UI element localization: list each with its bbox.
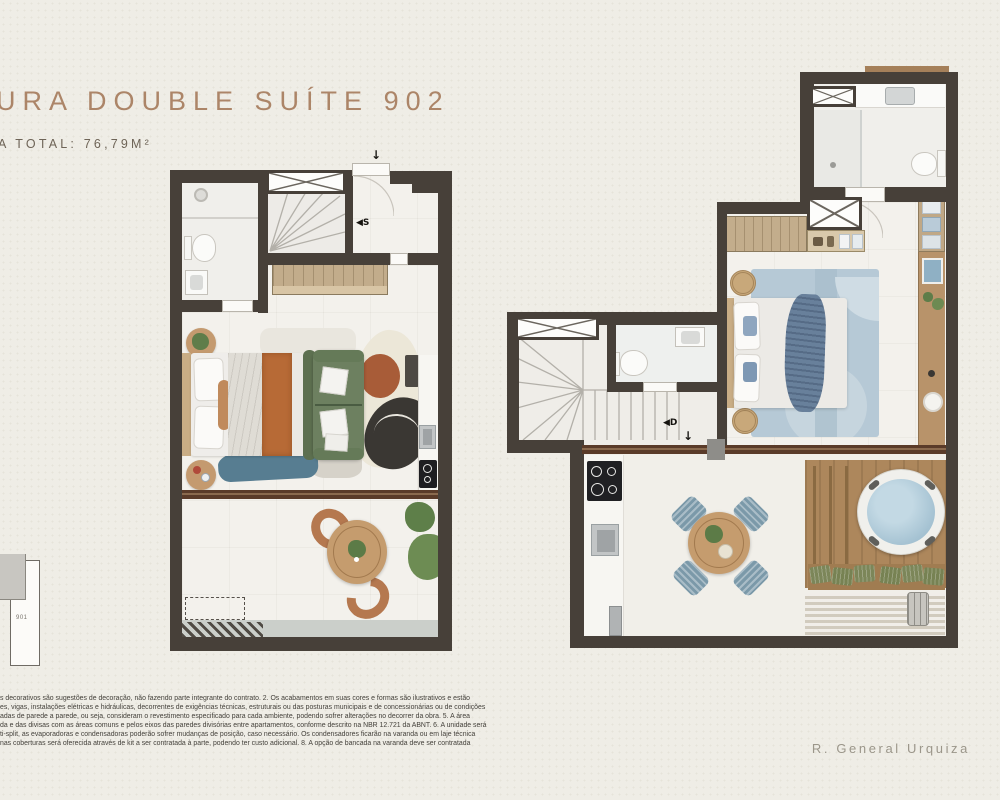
toilet-bowl [911, 152, 937, 176]
hot-tub-water [867, 479, 935, 545]
disclaimer-line: adas de parede a parede, ou seja, consid… [0, 712, 445, 721]
hot-tub [857, 469, 945, 555]
shower-head [194, 188, 208, 202]
bench-cushion [922, 567, 944, 586]
wall [570, 448, 584, 648]
door-swing-arc [354, 176, 394, 216]
disclaimer-line: nas coberturas será oferecida através de… [0, 739, 445, 748]
jute-rug [732, 408, 758, 434]
wall [717, 202, 809, 214]
staircase-first-level [268, 192, 345, 253]
wall [408, 253, 438, 265]
disclaimer-line: es, vigas, instalações elétricas e hidrá… [0, 703, 445, 712]
table-grain-ring [694, 518, 744, 568]
track-line [182, 493, 438, 495]
bathroom-sink [185, 270, 208, 295]
table-plant [705, 525, 723, 543]
burner [591, 483, 604, 496]
sofa [303, 350, 364, 460]
floor-plan-first-level: ↓ ◀S [170, 158, 462, 652]
sofa-armrest [313, 350, 364, 362]
wall [438, 171, 452, 645]
deck-plank-line [813, 466, 816, 578]
table-bowl [718, 544, 733, 559]
vanity-counter [855, 84, 945, 108]
table-dot [354, 557, 359, 562]
outdoor-shower [907, 592, 929, 626]
wall [946, 72, 958, 648]
track-line [582, 448, 946, 450]
shaft-box [515, 316, 599, 340]
bed-suite [727, 298, 847, 408]
deck-plank-line [845, 466, 848, 578]
table-lamp [923, 392, 943, 412]
shower-drain [830, 162, 836, 168]
bench-cushion [831, 567, 854, 586]
bench-cushion [853, 564, 875, 582]
wall [258, 183, 268, 313]
wardrobe-front [273, 286, 387, 294]
sofa-cushion-gap [315, 404, 362, 406]
side-table-decor [186, 460, 216, 490]
bed-duvet [228, 353, 262, 456]
accent-pillow [743, 316, 757, 336]
dining-table [688, 512, 750, 574]
sink-basin [423, 429, 432, 445]
toilet-tank [184, 236, 192, 260]
door-mullion [707, 439, 725, 460]
kitchen-cabinet [609, 606, 622, 636]
door-opening [390, 253, 408, 265]
wall [607, 382, 643, 392]
desk-decor [928, 370, 935, 377]
plant-top [192, 333, 209, 350]
entry-door [352, 163, 390, 176]
wall [677, 382, 717, 392]
sliding-door-track [182, 490, 438, 499]
total-area-label: A TOTAL: 76,79M² [0, 137, 152, 151]
kitchen-sink [591, 524, 619, 556]
wardrobe-suite [725, 216, 807, 252]
wall [253, 300, 268, 312]
decor-red [193, 466, 201, 474]
refrigerator [405, 355, 419, 387]
disclaimer-line: s decorativos são sugestões de decoração… [0, 694, 445, 703]
terrace-table [327, 520, 387, 584]
keyplan: 901 [0, 553, 50, 671]
burner [591, 466, 602, 477]
deck-plank-line [829, 466, 832, 578]
wall [570, 636, 958, 648]
page-title: URA DOUBLE SUÍTE 902 [0, 86, 450, 117]
accent-pillow [743, 362, 757, 382]
rug-charcoal-line [373, 413, 421, 455]
towel-stack [922, 217, 941, 232]
bench-cushion [879, 566, 902, 585]
shaft-box [807, 197, 862, 230]
wall [170, 170, 182, 651]
sofa-pillow [319, 366, 348, 395]
sofa-pillow [324, 433, 348, 452]
jute-rug [730, 270, 756, 296]
shower-glass-divider [182, 217, 258, 219]
desk-plant [932, 298, 944, 310]
stair-direction-label: ◀S [356, 218, 369, 228]
door-opening [222, 300, 253, 312]
burner [608, 485, 617, 494]
vanity-sink [885, 87, 915, 105]
table-plant [348, 540, 366, 558]
wall [170, 637, 452, 651]
brochure-page: URA DOUBLE SUÍTE 902 A TOTAL: 76,79M² [0, 0, 1000, 800]
wall [345, 170, 353, 256]
cooktop-4-burner [587, 461, 622, 501]
sliding-door-track [582, 445, 946, 454]
bed-throw [783, 293, 827, 412]
towel-stack [922, 201, 941, 214]
wall [266, 253, 392, 265]
desk-plant [923, 292, 933, 302]
wall [885, 187, 946, 202]
rug-rust-circle [360, 354, 400, 398]
burner [424, 476, 431, 483]
door-opening [643, 382, 677, 392]
wardrobe [272, 262, 388, 295]
keyplan-neighbor-block [0, 554, 26, 600]
decor-white [201, 473, 210, 482]
picture-frame [922, 258, 943, 284]
optional-item-outline [185, 597, 245, 620]
keyplan-unit-label: 901 [16, 615, 28, 621]
floor-plan-second-level: ◀D ↓ [505, 66, 960, 652]
disclaimer-block: s decorativos são sugestões de decoração… [0, 694, 445, 749]
disclaimer-line: da e das divisas com as áreas comuns e p… [0, 721, 445, 730]
bench-cushion [809, 565, 832, 585]
burner [423, 464, 432, 473]
linen-cabinet [918, 197, 945, 252]
bed-foot-strip [292, 353, 303, 456]
terrace-plant [405, 502, 435, 532]
shower-glass [860, 110, 862, 187]
towel-stack [922, 235, 941, 249]
wall [170, 170, 270, 183]
floor-grate [182, 622, 263, 637]
bed-orange-runner [262, 353, 292, 456]
toilet-tank [937, 150, 946, 177]
wall [800, 72, 958, 84]
cooktop [419, 460, 437, 488]
shaft-box [810, 86, 856, 107]
shoes [827, 236, 834, 247]
toilet-bowl [192, 234, 216, 262]
bed-first-level [182, 353, 303, 456]
bench-cushion [901, 564, 924, 583]
sink-basin [597, 530, 615, 552]
disclaimer-line: ti-split, as evaporadoras e condensadora… [0, 730, 445, 739]
stair-direction-label: ◀D [663, 418, 677, 428]
console-desk [918, 252, 945, 445]
street-label: R. General Urquiza [725, 741, 970, 756]
entry-arrow: ↓ [683, 430, 693, 442]
shaft-box [266, 170, 346, 194]
bed-headboard [182, 353, 191, 456]
sink-basin [190, 275, 203, 290]
wall [182, 300, 222, 312]
burner [607, 467, 616, 476]
shoes [813, 237, 823, 246]
kitchen-sink [419, 425, 436, 449]
shower-area [814, 110, 860, 187]
wall [717, 202, 727, 453]
entry-arrow: ↓ [371, 149, 381, 161]
